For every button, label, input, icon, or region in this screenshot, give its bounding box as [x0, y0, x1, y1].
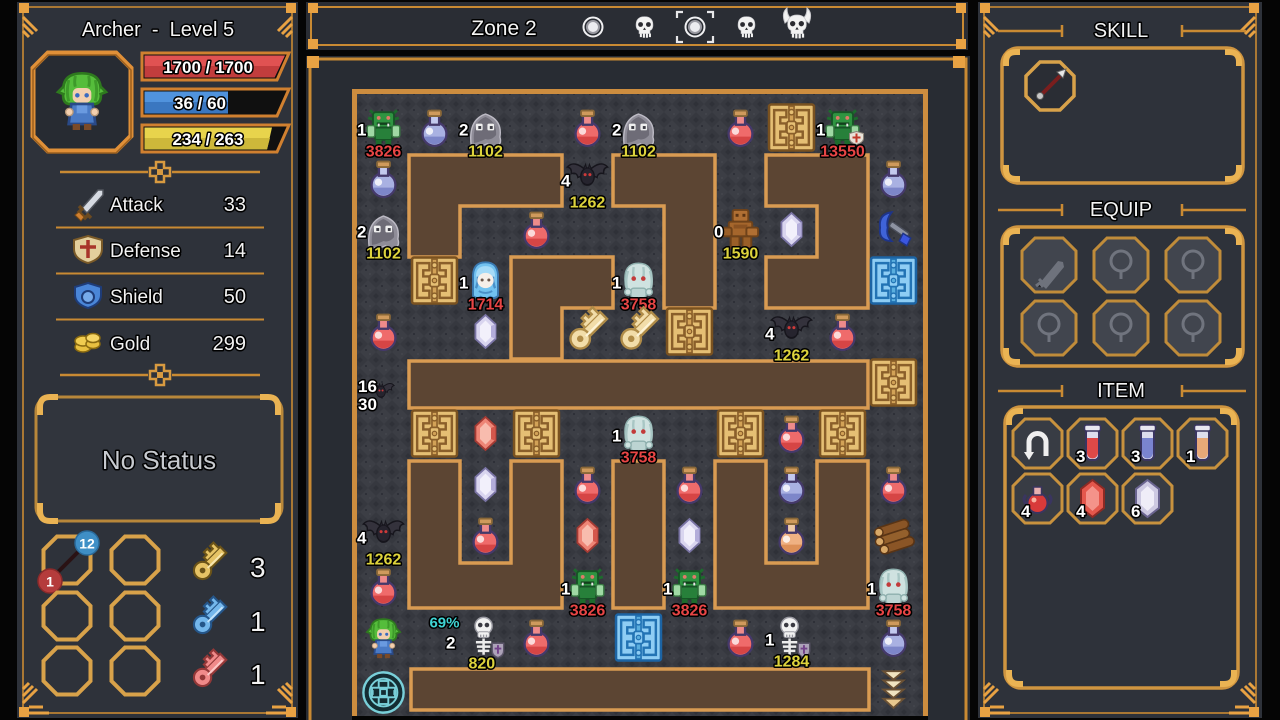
svg-text:1102: 1102	[621, 144, 656, 161]
svg-text:36 / 60: 36 / 60	[174, 94, 226, 113]
svg-text:ITEM: ITEM	[1097, 380, 1145, 402]
svg-text:1: 1	[357, 121, 366, 140]
svg-text:1: 1	[612, 427, 621, 446]
svg-text:1: 1	[250, 606, 266, 637]
svg-text:1: 1	[867, 580, 876, 599]
svg-text:1: 1	[459, 274, 468, 293]
svg-text:Zone 2: Zone 2	[471, 17, 536, 40]
svg-text:0: 0	[714, 223, 723, 242]
svg-text:1102: 1102	[468, 144, 503, 161]
svg-text:2: 2	[459, 121, 468, 140]
svg-text:1714: 1714	[468, 297, 504, 314]
svg-text:6: 6	[1131, 502, 1140, 521]
svg-text:4: 4	[765, 325, 775, 344]
svg-text:Gold: Gold	[110, 334, 150, 355]
svg-text:3: 3	[1076, 447, 1085, 466]
svg-text:Defense: Defense	[110, 241, 181, 262]
svg-text:3826: 3826	[366, 144, 402, 161]
svg-text:12: 12	[79, 536, 95, 552]
svg-text:4: 4	[561, 172, 571, 191]
svg-text:1: 1	[663, 580, 672, 599]
svg-text:69%: 69%	[429, 615, 459, 632]
svg-text:3826: 3826	[570, 603, 606, 620]
svg-text:3: 3	[1131, 447, 1140, 466]
svg-text:4: 4	[1076, 502, 1086, 521]
svg-text:3758: 3758	[876, 603, 912, 620]
svg-text:Shield: Shield	[110, 287, 163, 308]
svg-text:2: 2	[357, 223, 366, 242]
svg-text:33: 33	[224, 194, 246, 216]
svg-text:3: 3	[250, 552, 266, 583]
svg-text:1102: 1102	[366, 246, 401, 263]
svg-text:1: 1	[561, 580, 570, 599]
svg-text:14: 14	[224, 240, 246, 262]
svg-text:16: 16	[358, 377, 377, 396]
svg-text:SKILL: SKILL	[1094, 20, 1148, 42]
svg-text:50: 50	[224, 286, 246, 308]
svg-text:Archer - Level 5: Archer - Level 5	[82, 19, 234, 41]
svg-text:234 / 263: 234 / 263	[173, 130, 244, 149]
svg-text:30: 30	[358, 395, 377, 414]
svg-text:299: 299	[213, 333, 246, 355]
svg-text:1262: 1262	[774, 348, 810, 365]
svg-text:EQUIP: EQUIP	[1090, 199, 1152, 221]
svg-text:1590: 1590	[723, 246, 759, 263]
svg-text:2: 2	[446, 634, 455, 653]
svg-text:13550: 13550	[820, 144, 865, 161]
svg-text:3758: 3758	[621, 450, 657, 467]
svg-text:1284: 1284	[774, 654, 810, 671]
svg-text:1262: 1262	[366, 552, 402, 569]
svg-text:No Status: No Status	[102, 445, 216, 475]
svg-text:1: 1	[765, 631, 774, 650]
svg-text:1: 1	[46, 574, 54, 590]
svg-text:4: 4	[357, 529, 367, 548]
svg-text:820: 820	[469, 656, 496, 673]
svg-text:1: 1	[612, 274, 621, 293]
svg-text:1: 1	[1186, 447, 1195, 466]
svg-text:4: 4	[1021, 502, 1031, 521]
svg-text:1: 1	[816, 121, 825, 140]
svg-text:3826: 3826	[672, 603, 708, 620]
svg-text:2: 2	[612, 121, 621, 140]
svg-text:1262: 1262	[570, 195, 606, 212]
svg-text:1700 / 1700: 1700 / 1700	[163, 58, 253, 77]
svg-text:1: 1	[250, 659, 266, 690]
svg-text:Attack: Attack	[110, 195, 163, 216]
